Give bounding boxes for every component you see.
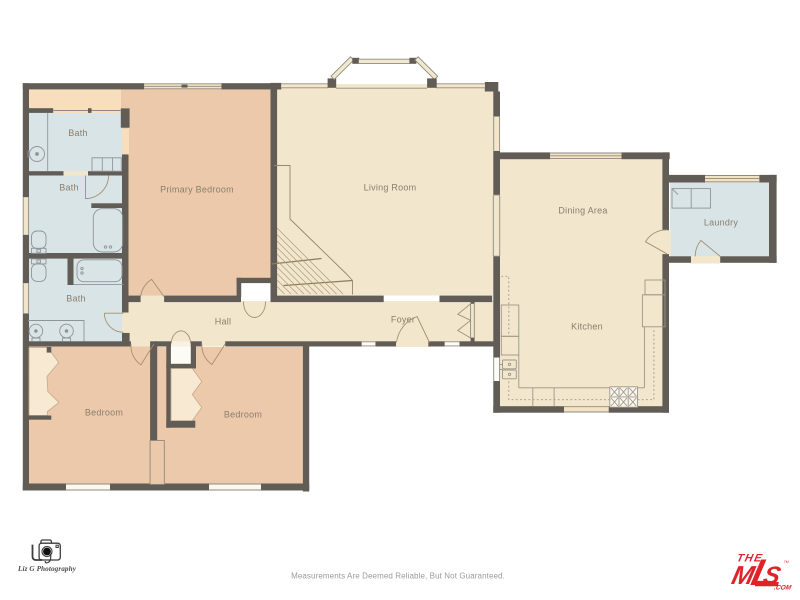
svg-text:Measurements Are Deemed Reliab: Measurements Are Deemed Reliable, But No… [291, 571, 505, 580]
svg-text:Laundry: Laundry [704, 218, 739, 228]
svg-text:Bedroom: Bedroom [85, 408, 123, 418]
svg-text:Bedroom: Bedroom [224, 410, 262, 420]
svg-text:™: ™ [782, 561, 789, 567]
svg-text:Bath: Bath [66, 294, 86, 304]
svg-text:Primary Bedroom: Primary Bedroom [160, 185, 234, 195]
svg-text:Hall: Hall [215, 317, 232, 327]
svg-text:Bath: Bath [68, 128, 88, 138]
svg-text:Liz G Photography: Liz G Photography [17, 565, 77, 573]
svg-text:Bath: Bath [59, 183, 79, 193]
svg-text:.COM: .COM [773, 584, 792, 591]
svg-text:Kitchen: Kitchen [571, 322, 603, 332]
svg-text:Living Room: Living Room [364, 183, 417, 193]
svg-text:Dining Area: Dining Area [558, 206, 607, 216]
svg-text:Foyer: Foyer [391, 315, 415, 325]
